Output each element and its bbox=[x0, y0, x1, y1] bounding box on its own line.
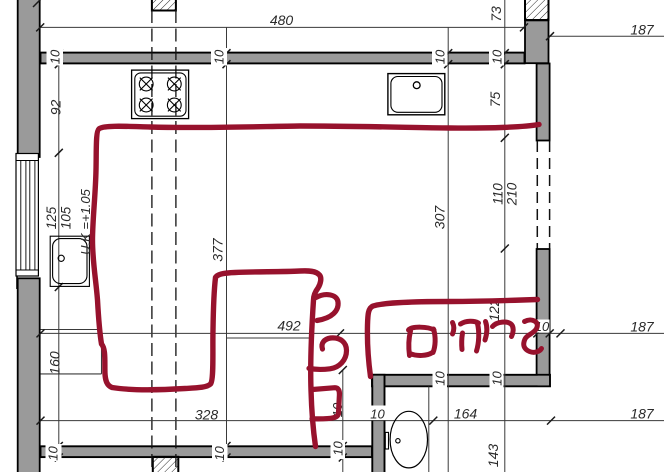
svg-text:328: 328 bbox=[195, 407, 219, 423]
svg-text:210: 210 bbox=[505, 182, 520, 206]
svg-text:492: 492 bbox=[277, 318, 301, 334]
svg-text:73: 73 bbox=[488, 6, 504, 22]
svg-text:160: 160 bbox=[47, 351, 63, 375]
svg-text:110: 110 bbox=[491, 183, 506, 205]
svg-text:187: 187 bbox=[630, 319, 655, 335]
svg-text:10: 10 bbox=[48, 49, 63, 64]
svg-text:10: 10 bbox=[490, 49, 505, 64]
svg-text:105: 105 bbox=[59, 206, 74, 229]
svg-text:187: 187 bbox=[630, 22, 655, 38]
svg-text:10: 10 bbox=[433, 371, 448, 386]
svg-text:10: 10 bbox=[46, 446, 61, 461]
svg-text:10: 10 bbox=[370, 407, 385, 422]
svg-text:10: 10 bbox=[331, 441, 346, 456]
svg-text:143: 143 bbox=[485, 444, 501, 468]
svg-text:125: 125 bbox=[44, 206, 59, 229]
svg-text:92: 92 bbox=[48, 100, 64, 116]
svg-text:164: 164 bbox=[454, 406, 478, 422]
svg-text:75: 75 bbox=[487, 92, 503, 108]
svg-text:187: 187 bbox=[630, 406, 655, 422]
svg-text:10: 10 bbox=[433, 49, 448, 64]
svg-text:480: 480 bbox=[270, 12, 294, 28]
svg-text:10: 10 bbox=[490, 371, 505, 386]
svg-text:10: 10 bbox=[212, 446, 227, 461]
svg-text:307: 307 bbox=[432, 205, 448, 230]
svg-text:10: 10 bbox=[212, 49, 227, 64]
svg-text:377: 377 bbox=[210, 237, 226, 262]
